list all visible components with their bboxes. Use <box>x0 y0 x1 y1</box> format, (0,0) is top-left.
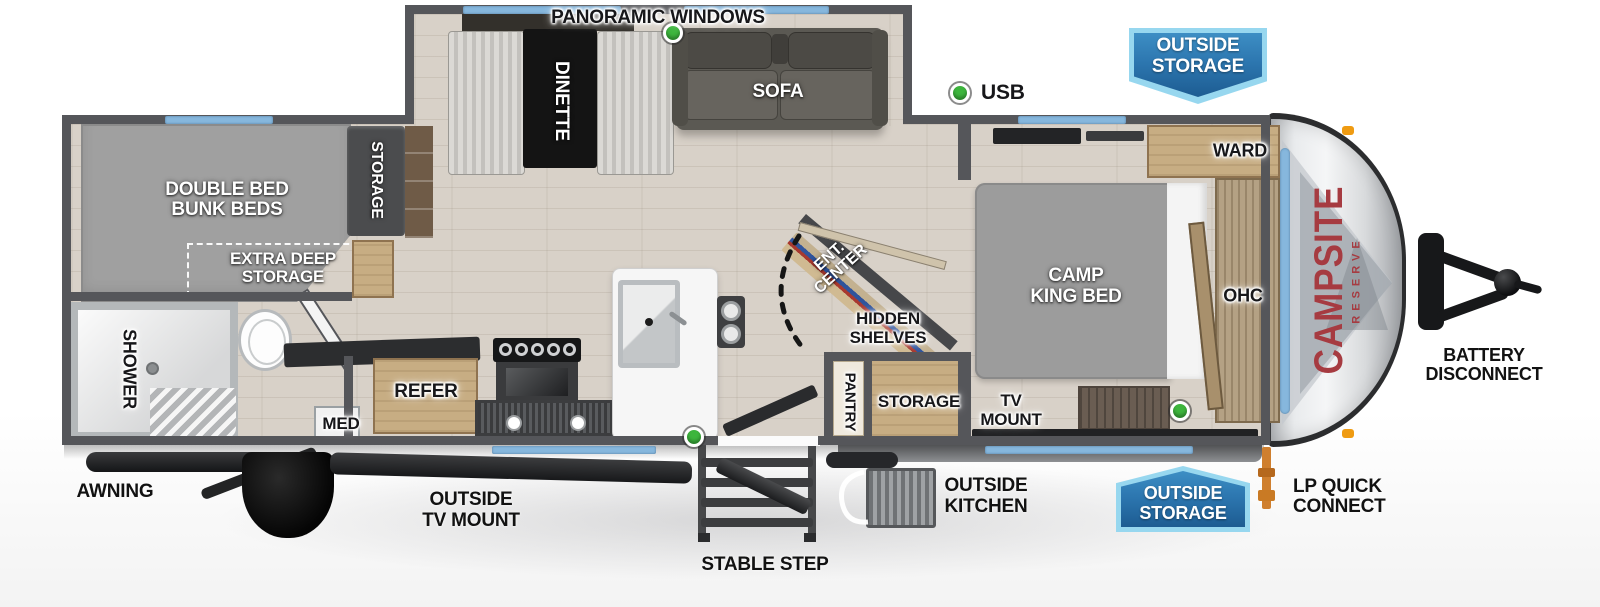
label-outside-tv-mount: OUTSIDE TV MOUNT <box>422 489 520 531</box>
lp-pipe-coupler <box>1258 468 1275 477</box>
label-usb: USB <box>981 81 1025 105</box>
bunk-nightstand <box>352 240 394 298</box>
wall-bathroom <box>62 292 352 301</box>
label-pantry: PANTRY <box>842 373 859 432</box>
label-outside-kitchen: OUTSIDE KITCHEN <box>944 475 1027 517</box>
bedroom-shelf-2 <box>1086 131 1144 141</box>
wall-slideout-left <box>405 5 414 124</box>
usb-indicator-legend <box>950 83 970 103</box>
label-hidden-shelves: HIDDEN SHELVES <box>850 309 927 347</box>
outside-kitchen-unit <box>866 468 936 528</box>
label-awning: AWNING <box>77 481 154 503</box>
wall-partition-top <box>958 123 971 180</box>
outside-storage-badge-top-label: OUTSIDE STORAGE <box>1152 35 1244 77</box>
wall-front <box>1261 115 1270 445</box>
usb-indicator-kitchen <box>684 427 704 447</box>
label-bunk-storage: STORAGE <box>367 141 385 218</box>
wall-slideout-right <box>903 5 912 124</box>
label-tv-mount: TV MOUNT <box>980 391 1041 429</box>
label-mid-storage: STORAGE <box>878 392 960 412</box>
label-panoramic-windows: PANORAMIC WINDOWS <box>551 7 765 29</box>
window-bedroom-top <box>1018 116 1126 124</box>
outside-storage-badge-bottom-label: OUTSIDE STORAGE <box>1139 483 1226 523</box>
dinette-bench-left <box>448 31 525 175</box>
shower-drain <box>146 362 159 375</box>
cap-marker-light-top <box>1342 126 1354 135</box>
label-extra-deep-storage: EXTRA DEEP STORAGE <box>230 250 336 286</box>
label-lp-quick-connect: LP QUICK CONNECT <box>1293 477 1386 517</box>
cap-marker-light-bottom <box>1342 429 1354 438</box>
label-refer: REFER <box>394 381 457 403</box>
kitchen-sink <box>618 280 680 368</box>
label-bunk-beds: DOUBLE BED BUNK BEDS <box>165 180 289 220</box>
bedroom-tv-shelf <box>993 128 1081 144</box>
label-shower: SHOWER <box>119 329 140 409</box>
label-dinette: DINETTE <box>550 61 572 141</box>
window-front-vertical <box>1280 148 1290 414</box>
label-camp-king-bed: CAMP KING BED <box>1030 265 1121 307</box>
entry-threshold <box>718 436 820 446</box>
label-sofa: SOFA <box>753 81 804 103</box>
hitch-handle <box>1513 280 1542 295</box>
wall-pantry-mid <box>864 358 872 445</box>
label-battery-disconnect: BATTERY DISCONNECT <box>1425 346 1542 384</box>
wall-bottom-right <box>818 436 1270 445</box>
usb-indicator-bedroom <box>1170 401 1190 421</box>
sofa <box>676 28 884 130</box>
wall-pantry-top <box>824 352 970 361</box>
stove <box>493 338 581 362</box>
brand-logo: CAMPSITE RESERVE <box>1310 186 1363 375</box>
window-bunk <box>165 116 273 124</box>
sink-drain <box>645 318 653 326</box>
island-side-rack <box>717 296 745 348</box>
floorplan-canvas: CAMPSITE RESERVE <box>0 0 1600 607</box>
hitch <box>1405 225 1555 340</box>
bedroom-dresser <box>1078 386 1170 430</box>
shower <box>70 302 238 440</box>
label-ohc: OHC <box>1223 286 1262 307</box>
stable-step <box>698 445 818 540</box>
oven <box>496 362 578 402</box>
wall-rear <box>62 115 71 445</box>
label-ward: WARD <box>1213 141 1267 162</box>
bunk-side-cabinet <box>405 126 433 238</box>
lp-pipe-coupler-2 <box>1258 490 1275 501</box>
dinette-bench-right <box>597 31 674 175</box>
brand-name: CAMPSITE <box>1307 186 1353 375</box>
label-med: MED <box>322 414 359 434</box>
window-kitchen-bottom <box>492 446 656 454</box>
wall-pantry-left <box>824 352 833 445</box>
label-stable-step: STABLE STEP <box>701 554 828 576</box>
outside-kitchen-rail <box>826 452 898 468</box>
window-bedroom-bottom <box>985 446 1193 454</box>
shower-ridges <box>150 388 236 438</box>
wall-bottom-left <box>62 436 718 445</box>
